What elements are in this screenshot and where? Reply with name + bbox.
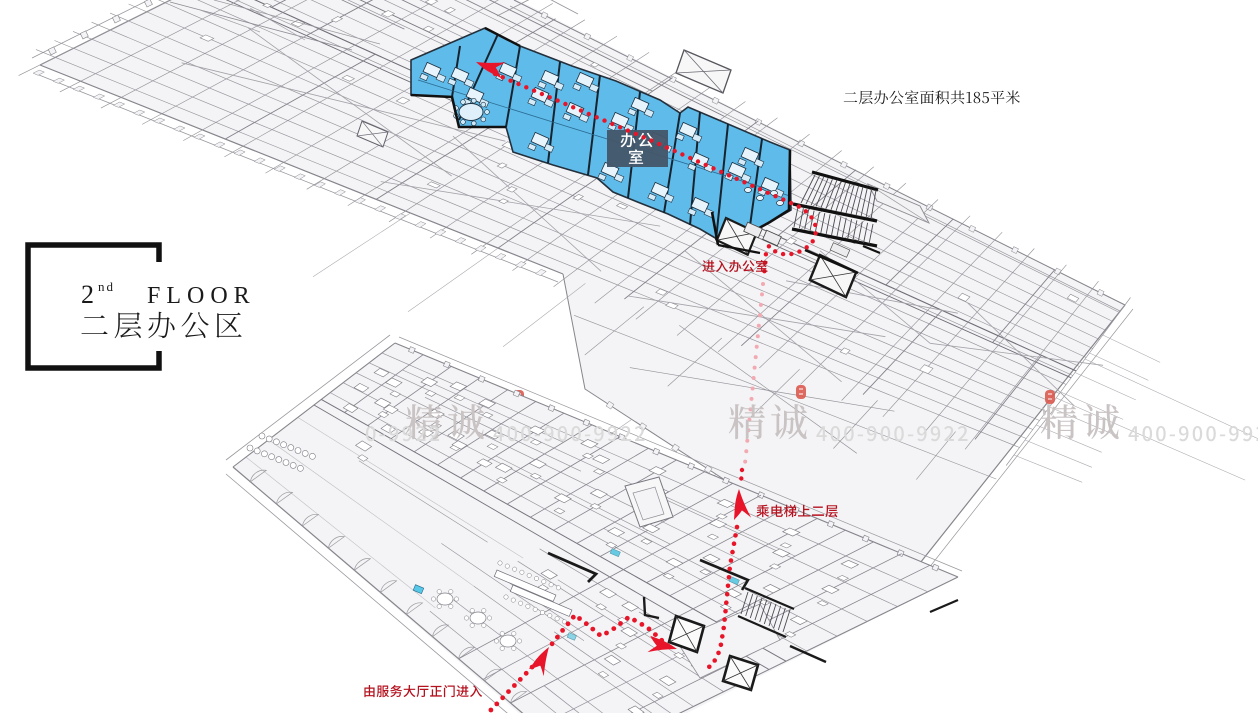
svg-text:nd: nd (98, 279, 115, 294)
svg-text:2: 2 (81, 280, 94, 309)
svg-text:FLOOR: FLOOR (147, 283, 256, 309)
